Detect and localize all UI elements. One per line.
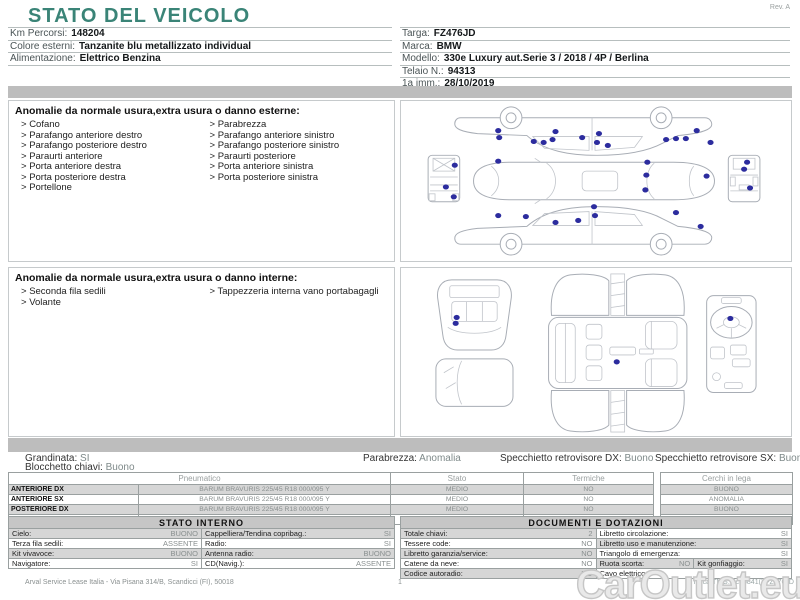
damage-dot	[552, 129, 558, 134]
vehicle-report-page: Rev. A STATO DEL VEICOLO Km Percorsi:148…	[0, 0, 800, 600]
exterior-anomalies-title: Anomalie da normale usura,extra usura o …	[9, 101, 394, 120]
label-value-pair: Libretto circolazione:SI	[597, 529, 792, 538]
tyre-row: POSTERIORE DXBARUM BRAVURIS 225/45 R18 0…	[9, 505, 793, 515]
pair-value: BUONO	[170, 529, 198, 538]
pair-cell-left: Catene da neve:NO	[401, 559, 597, 569]
pair-row: Cielo:BUONOCappelliera/Tendina copribag.…	[9, 529, 395, 539]
vehicle-info-label: Colore esterni:	[10, 42, 75, 52]
tyre-cell-stato: MEDIO	[391, 485, 524, 495]
damage-dot	[549, 137, 555, 142]
tyre-cell-stato: MEDIO	[391, 495, 524, 505]
pair-value: NO	[581, 539, 592, 548]
label-value-pair: Totale chiavi:2	[401, 529, 596, 538]
damage-dot	[552, 220, 558, 225]
pair-cell-left: Navigatore:SI	[9, 559, 202, 569]
pair-value: 2	[588, 529, 592, 538]
label-value-pair: Libretto garanzia/service:NO	[401, 549, 596, 558]
pair-cell-right: Cappelliera/Tendina copribag.:SI	[202, 529, 395, 539]
damage-dot	[643, 172, 649, 177]
pair-row: Totale chiavi:2Libretto circolazione:SI	[401, 529, 792, 539]
label-value-pair: Kit vivavoce:BUONO	[9, 549, 201, 558]
pair-label: Kit vivavoce:	[12, 549, 54, 558]
condition-value: Buono	[625, 453, 654, 464]
damage-dot	[698, 224, 704, 229]
damage-dot	[744, 160, 750, 165]
label-value-pair: Terza fila sedili:ASSENTE	[9, 539, 201, 548]
pair-value: NO	[581, 549, 592, 558]
pair-value: ASSENTE	[163, 539, 198, 548]
damage-dot	[614, 359, 620, 364]
separator-band-top	[8, 86, 792, 98]
pair-label: Radio:	[205, 539, 227, 548]
pair-label: Terza fila sedili:	[12, 539, 63, 548]
pair-cell-right: Libretto circolazione:SI	[596, 529, 792, 539]
tyre-header-cerchi: Cerchi in lega	[661, 473, 793, 485]
condition-label: Specchietto retrovisore SX:	[655, 453, 776, 464]
condition-specchietto-dx: Specchietto retrovisore DX: Buono	[500, 453, 653, 464]
revision-label: Rev. A	[770, 4, 790, 11]
damage-dot	[496, 135, 502, 140]
condition-label: Specchietto retrovisore DX:	[500, 453, 622, 464]
tyre-cell-tyre: BARUM BRAVURIS 225/45 R18 000/095 Y	[139, 485, 391, 495]
tyre-header-spacer	[654, 473, 661, 485]
tyre-header-pneumatico: Pneumatico	[9, 473, 391, 485]
label-value-pair: Radio:SI	[202, 539, 394, 548]
damage-dot	[452, 163, 458, 168]
vehicle-info-row: Alimentazione:Elettrico Benzina	[8, 53, 392, 66]
condition-specchietto-sx: Specchietto retrovisore SX: Buono	[655, 453, 800, 464]
vehicle-info-label: Telaio N.:	[402, 67, 444, 77]
tyre-cell-spc	[654, 495, 661, 505]
tyre-cell-spc	[654, 485, 661, 495]
pair-label: Libretto uso e manutenzione:	[600, 539, 697, 548]
pair-cell-left: Terza fila sedili:ASSENTE	[9, 539, 202, 549]
tyre-cell-termiche: NO	[524, 505, 654, 515]
tyre-header-stato: Stato	[391, 473, 524, 485]
pair-cell-right: CD(Navig.):ASSENTE	[202, 559, 395, 569]
pair-label: Tessere code:	[404, 539, 451, 548]
tyre-cell-cerchi: ANOMALIA	[661, 495, 793, 505]
tyre-cell-termiche: NO	[524, 485, 654, 495]
vehicle-info-value: Tanzanite blu metallizzato individual	[79, 42, 251, 52]
pair-label: Triangolo di emergenza:	[600, 549, 681, 558]
vehicle-info-row: Colore esterni:Tanzanite blu metallizzat…	[8, 41, 392, 54]
damage-dot	[594, 140, 600, 145]
pair-cell-left: Codice autoradio:NO	[401, 569, 597, 579]
damage-dot	[453, 321, 459, 326]
vehicle-info-label: Targa:	[402, 29, 430, 39]
damage-dot	[575, 218, 581, 223]
condition-value: Buono	[779, 453, 800, 464]
pair-value: BUONO	[170, 549, 198, 558]
anomaly-item: Parabrezza	[210, 120, 391, 131]
tyre-cell-pos: ANTERIORE SX	[9, 495, 139, 505]
damage-dot	[673, 136, 679, 141]
vehicle-info-value: 148204	[71, 29, 104, 39]
caroutlet-watermark: CarOutlet.eu	[576, 563, 800, 600]
tyre-header-row: Pneumatico Stato Termiche Cerchi in lega	[9, 473, 793, 485]
tyre-cell-pos: ANTERIORE DX	[9, 485, 139, 495]
vehicle-info-value: FZ476JD	[434, 29, 476, 39]
pair-cell-right: Antenna radio:BUONO	[202, 549, 395, 559]
tyre-cell-cerchi: BUONO	[661, 485, 793, 495]
tyre-cell-termiche: NO	[524, 495, 654, 505]
damage-dot	[707, 140, 713, 145]
exterior-anomalies-box: Anomalie da normale usura,extra usura o …	[8, 100, 395, 262]
documenti-header: DOCUMENTI E DOTAZIONI	[401, 517, 792, 529]
damage-dot	[454, 315, 460, 320]
damage-dot	[741, 167, 747, 172]
label-value-pair: Codice autoradio:NO	[401, 569, 596, 578]
label-value-pair: CD(Navig.):ASSENTE	[202, 559, 394, 568]
damage-dot	[683, 136, 689, 141]
damage-dot	[443, 184, 449, 189]
pair-row: Navigatore:SICD(Navig.):ASSENTE	[9, 559, 395, 569]
anomaly-item: Portellone	[21, 183, 202, 194]
damage-dot	[523, 214, 529, 219]
damage-dot	[541, 140, 547, 145]
vehicle-info-label: Km Percorsi:	[10, 29, 67, 39]
pair-value: SI	[384, 539, 391, 548]
pair-cell-left: Tessere code:NO	[401, 539, 597, 549]
pair-value: SI	[781, 529, 788, 538]
vehicle-info-value: 330e Luxury aut.Serie 3 / 2018 / 4P / Be…	[444, 54, 649, 64]
vehicle-info-row: Targa:FZ476JD	[400, 27, 790, 41]
damage-dot	[642, 187, 648, 192]
tyre-header-termiche: Termiche	[524, 473, 654, 485]
tyre-row: ANTERIORE DXBARUM BRAVURIS 225/45 R18 00…	[9, 485, 793, 495]
pair-label: Libretto circolazione:	[600, 529, 669, 538]
damage-dot	[747, 185, 753, 190]
interior-damage-diagram	[400, 267, 792, 437]
pair-cell-left: Totale chiavi:2	[401, 529, 597, 539]
damage-dot	[495, 213, 501, 218]
vehicle-info-value: Elettrico Benzina	[80, 54, 161, 64]
pair-label: CD(Navig.):	[205, 559, 244, 568]
damage-dot	[673, 210, 679, 215]
vehicle-info-label: Modello:	[402, 54, 440, 64]
tyre-cell-pos: POSTERIORE DX	[9, 505, 139, 515]
damage-dot	[591, 204, 597, 209]
pair-value: SI	[781, 549, 788, 558]
vehicle-info-value: 94313	[448, 67, 476, 77]
exterior-car-diagram	[401, 101, 789, 259]
tyre-cell-stato: MEDIO	[391, 505, 524, 515]
tyre-cell-cerchi: BUONO	[661, 505, 793, 515]
pair-label: Catene da neve:	[404, 559, 459, 568]
vehicle-info-right: Targa:FZ476JDMarca:BMWModello:330e Luxur…	[400, 27, 790, 92]
pair-value: BUONO	[363, 549, 391, 558]
separator-band-bottom	[8, 438, 792, 452]
damage-dot	[596, 131, 602, 136]
interior-anomalies-title: Anomalie da normale usura,extra usura o …	[9, 268, 394, 287]
damage-dot	[704, 173, 710, 178]
interior-anomalies-col2: Tappezzeria interna vano portabagagli	[202, 287, 391, 308]
vehicle-info-row: Marca:BMW	[400, 41, 790, 54]
pair-value: ASSENTE	[356, 559, 391, 568]
pair-label: Codice autoradio:	[404, 569, 463, 578]
label-value-pair: Navigatore:SI	[9, 559, 201, 568]
pair-value: SI	[384, 529, 391, 538]
interior-anomalies-col1: Seconda fila sediliVolante	[13, 287, 202, 308]
damage-dot	[727, 316, 733, 321]
pair-value: SI	[191, 559, 198, 568]
label-value-pair: Triangolo di emergenza:SI	[597, 549, 792, 558]
pair-label: Libretto garanzia/service:	[404, 549, 488, 558]
interior-anomalies-box: Anomalie da normale usura,extra usura o …	[8, 267, 395, 437]
pair-cell-right: Radio:SI	[202, 539, 395, 549]
damage-dot	[644, 160, 650, 165]
pair-label: Totale chiavi:	[404, 529, 447, 538]
vehicle-info-row: Telaio N.:94313	[400, 66, 790, 79]
vehicle-info-value: BMW	[437, 42, 462, 52]
anomaly-item: Tappezzeria interna vano portabagagli	[210, 287, 391, 298]
stato-interno-table: STATO INTERNO Cielo:BUONOCappelliera/Ten…	[8, 516, 395, 569]
anomaly-item: Seconda fila sedili	[21, 287, 202, 298]
damage-dot	[694, 128, 700, 133]
pair-label: Cielo:	[12, 529, 31, 538]
condition-value: Anomalia	[419, 453, 461, 464]
exterior-anomalies-col2: ParabrezzaParafango anteriore sinistroPa…	[202, 120, 391, 194]
interior-car-diagram	[401, 268, 789, 434]
damage-dot	[605, 143, 611, 148]
label-value-pair: Antenna radio:BUONO	[202, 549, 394, 558]
pair-cell-left: Kit vivavoce:BUONO	[9, 549, 202, 559]
exterior-damage-diagram	[400, 100, 792, 262]
stato-interno-header: STATO INTERNO	[9, 517, 395, 529]
damage-dot	[531, 139, 537, 144]
vehicle-info-left: Km Percorsi:148204Colore esterni:Tanzani…	[8, 27, 392, 66]
anomaly-item: Cofano	[21, 120, 202, 131]
anomaly-item: Volante	[21, 298, 202, 309]
pair-label: Navigatore:	[12, 559, 50, 568]
pair-row: Kit vivavoce:BUONOAntenna radio:BUONO	[9, 549, 395, 559]
label-value-pair: Libretto uso e manutenzione:SI	[597, 539, 792, 548]
anomaly-item: Porta anteriore sinistra	[210, 162, 391, 173]
pair-label: Cappelliera/Tendina copribag.:	[205, 529, 306, 538]
exterior-anomalies-col1: CofanoParafango anteriore destroParafang…	[13, 120, 202, 194]
pair-row: Tessere code:NOLibretto uso e manutenzio…	[401, 539, 792, 549]
tyre-cell-tyre: BARUM BRAVURIS 225/45 R18 000/095 Y	[139, 505, 391, 515]
tyre-cell-tyre: BARUM BRAVURIS 225/45 R18 000/095 Y	[139, 495, 391, 505]
label-value-pair: Catene da neve:NO	[401, 559, 596, 568]
pair-cell-left: Cielo:BUONO	[9, 529, 202, 539]
anomaly-item: Porta posteriore sinistra	[210, 173, 391, 184]
tyre-row: ANTERIORE SXBARUM BRAVURIS 225/45 R18 00…	[9, 495, 793, 505]
damage-dot	[663, 137, 669, 142]
label-value-pair: Tessere code:NO	[401, 539, 596, 548]
condition-parabrezza: Parabrezza: Anomalia	[363, 453, 461, 464]
vehicle-info-label: Alimentazione:	[10, 54, 76, 64]
page-title: STATO DEL VEICOLO	[28, 5, 250, 28]
anomaly-item: Porta anteriore destra	[21, 162, 202, 173]
pair-cell-right: Triangolo di emergenza:SI	[596, 549, 792, 559]
label-value-pair: Cappelliera/Tendina copribag.:SI	[202, 529, 394, 538]
pair-cell-left: Libretto garanzia/service:NO	[401, 549, 597, 559]
damage-dot	[579, 135, 585, 140]
condition-label: Parabrezza:	[363, 453, 417, 464]
damage-dot	[592, 213, 598, 218]
damage-dot	[495, 159, 501, 164]
vehicle-info-row: Km Percorsi:148204	[8, 27, 392, 41]
pair-row: Terza fila sedili:ASSENTERadio:SI	[9, 539, 395, 549]
tyre-cell-spc	[654, 505, 661, 515]
pair-label: Antenna radio:	[205, 549, 254, 558]
label-value-pair: Cielo:BUONO	[9, 529, 201, 538]
vehicle-info-label: Marca:	[402, 42, 433, 52]
vehicle-info-row: Modello:330e Luxury aut.Serie 3 / 2018 /…	[400, 53, 790, 66]
damage-dot	[495, 128, 501, 133]
anomaly-item: Parafango posteriore sinistro	[210, 141, 391, 152]
pair-value: SI	[781, 539, 788, 548]
damage-dot	[451, 194, 457, 199]
pair-cell-right: Libretto uso e manutenzione:SI	[596, 539, 792, 549]
anomaly-item: Parafango posteriore destro	[21, 141, 202, 152]
pair-row: Libretto garanzia/service:NOTriangolo di…	[401, 549, 792, 559]
